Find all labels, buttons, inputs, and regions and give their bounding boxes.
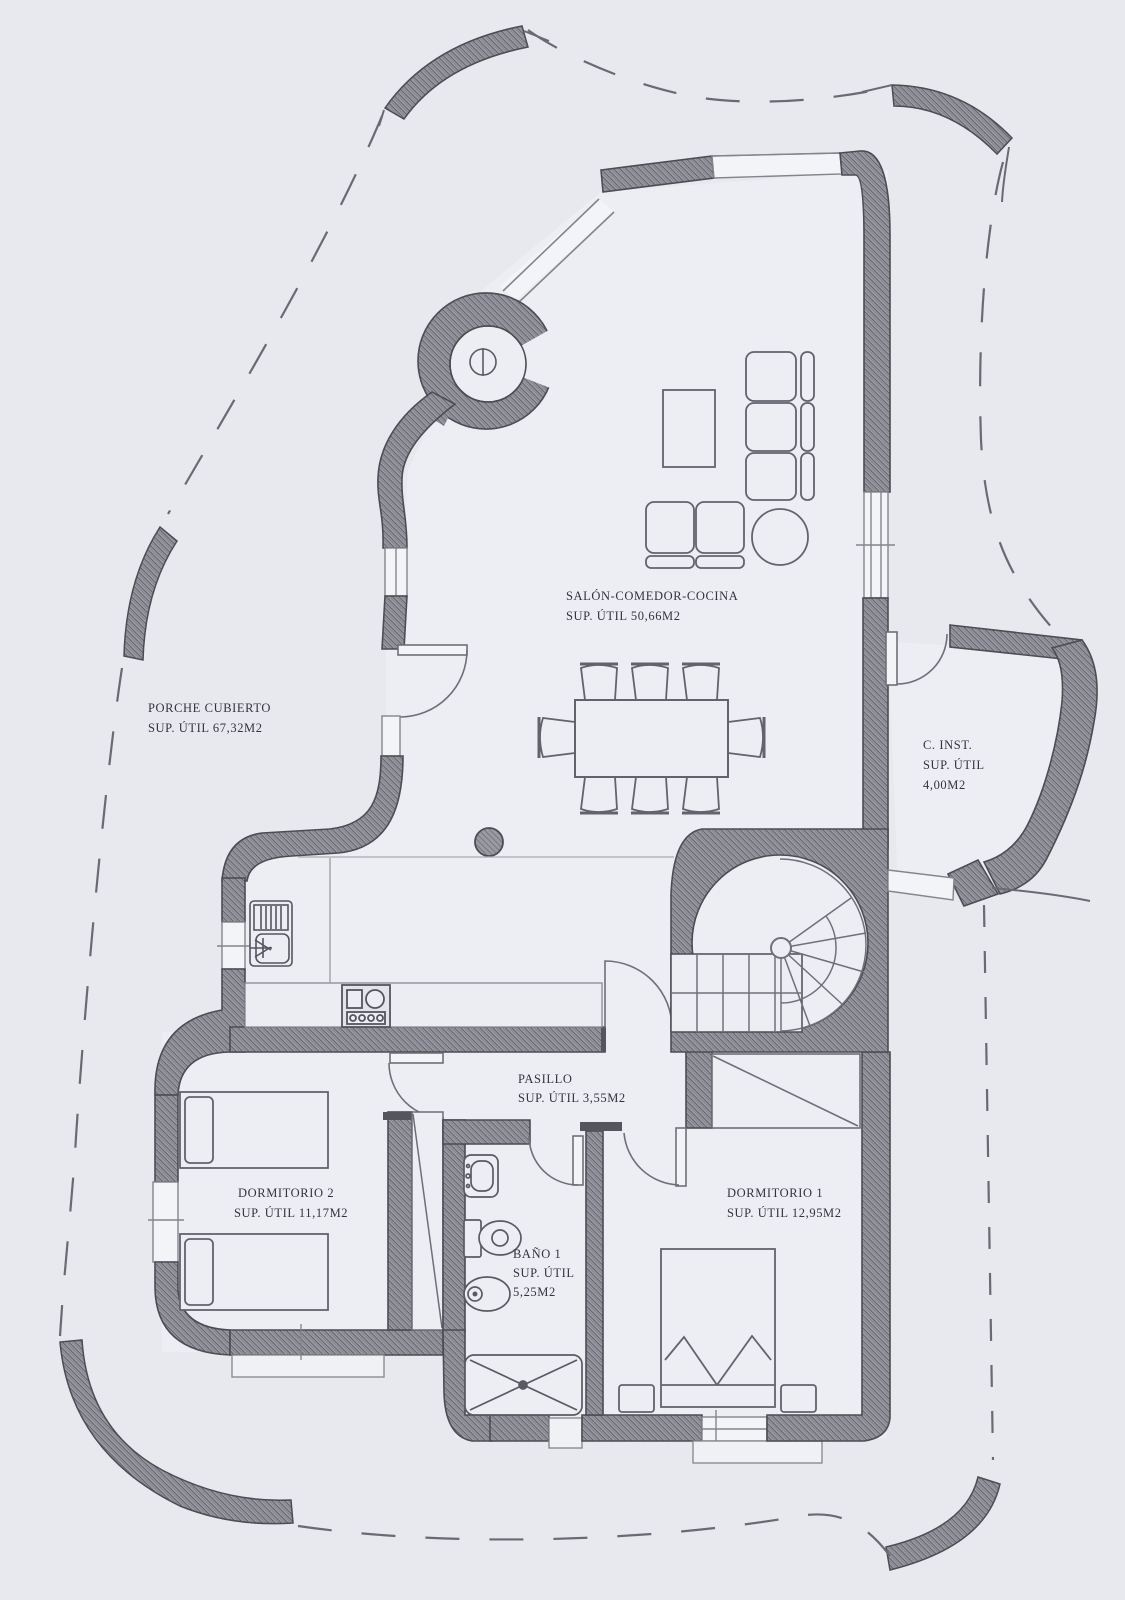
svg-text:4,00M2: 4,00M2	[923, 778, 966, 792]
svg-text:PASILLO: PASILLO	[518, 1072, 572, 1086]
svg-text:SALÓN-COMEDOR-COCINA: SALÓN-COMEDOR-COCINA	[566, 589, 738, 603]
svg-text:SUP. ÚTIL 11,17M2: SUP. ÚTIL 11,17M2	[234, 1206, 348, 1220]
svg-text:5,25M2: 5,25M2	[513, 1285, 556, 1299]
svg-text:SUP. ÚTIL 3,55M2: SUP. ÚTIL 3,55M2	[518, 1091, 626, 1105]
svg-text:SUP. ÚTIL 50,66M2: SUP. ÚTIL 50,66M2	[566, 609, 681, 623]
svg-text:SUP. ÚTIL: SUP. ÚTIL	[513, 1266, 575, 1280]
svg-text:SUP. ÚTIL 12,95M2: SUP. ÚTIL 12,95M2	[727, 1206, 842, 1220]
svg-text:SUP. ÚTIL 67,32M2: SUP. ÚTIL 67,32M2	[148, 721, 263, 735]
svg-text:DORMITORIO 2: DORMITORIO 2	[238, 1186, 334, 1200]
svg-text:DORMITORIO 1: DORMITORIO 1	[727, 1186, 823, 1200]
svg-text:SUP. ÚTIL: SUP. ÚTIL	[923, 758, 985, 772]
svg-text:C. INST.: C. INST.	[923, 738, 972, 752]
svg-text:BAÑO 1: BAÑO 1	[513, 1247, 561, 1261]
svg-text:PORCHE CUBIERTO: PORCHE CUBIERTO	[148, 701, 271, 715]
